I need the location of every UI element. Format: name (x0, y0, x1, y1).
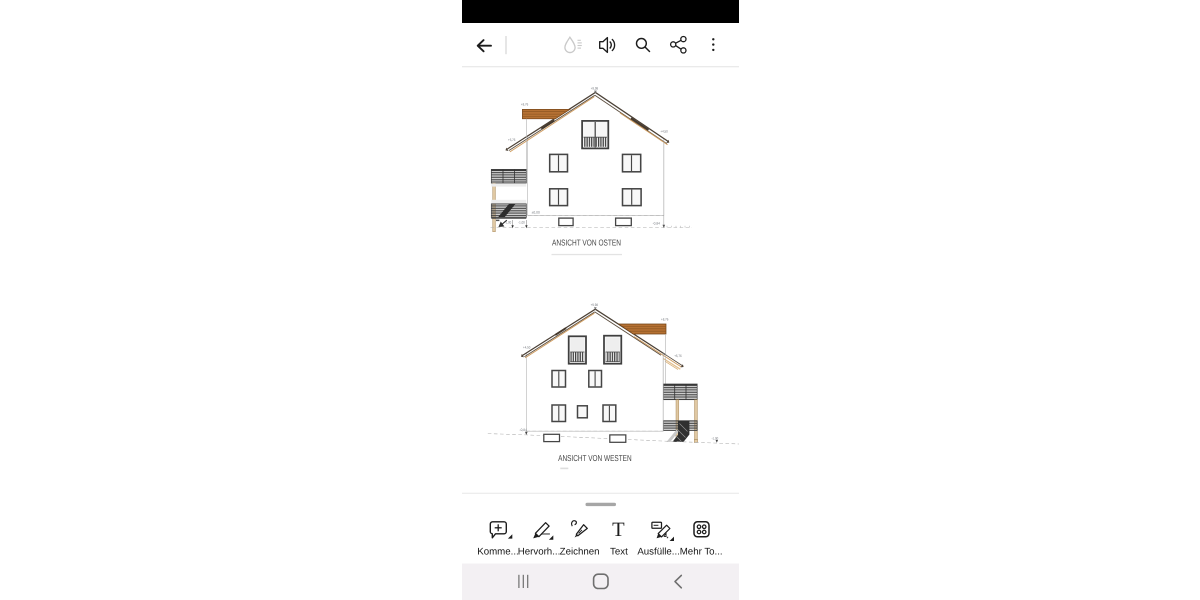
svg-text:+8,76: +8,76 (661, 318, 668, 322)
svg-text:Text: Text (610, 546, 628, 557)
svg-text:+5,76: +5,76 (508, 138, 515, 142)
svg-text:+4,50: +4,50 (660, 129, 667, 133)
svg-text:ANSICHT VON WESTEN: ANSICHT VON WESTEN (558, 453, 632, 463)
svg-text:+9,98: +9,98 (591, 303, 598, 307)
svg-text:+9,98: +9,98 (591, 87, 598, 91)
svg-text:Komme...: Komme... (477, 546, 518, 557)
svg-text:+4,50: +4,50 (523, 345, 530, 349)
svg-text:-1,00: -1,00 (518, 221, 525, 225)
svg-text:-0,84: -0,84 (520, 428, 527, 432)
svg-text:Hervorh...: Hervorh... (518, 546, 561, 557)
svg-text:ANSICHT VON OSTEN: ANSICHT VON OSTEN (552, 237, 621, 247)
svg-text:-0,84: -0,84 (653, 221, 660, 225)
svg-text:-1,00: -1,00 (712, 436, 719, 440)
svg-text:T: T (612, 519, 625, 541)
svg-text:±0,00: ±0,00 (532, 210, 540, 214)
svg-text:Zeichnen: Zeichnen (560, 546, 600, 557)
svg-text:+8,76: +8,76 (521, 103, 528, 107)
svg-text:Mehr To...: Mehr To... (680, 546, 723, 557)
svg-text:+5,76: +5,76 (674, 354, 681, 358)
svg-text:Ausfülle...: Ausfülle... (637, 546, 680, 557)
svg-text:-1,00: -1,00 (505, 221, 512, 225)
